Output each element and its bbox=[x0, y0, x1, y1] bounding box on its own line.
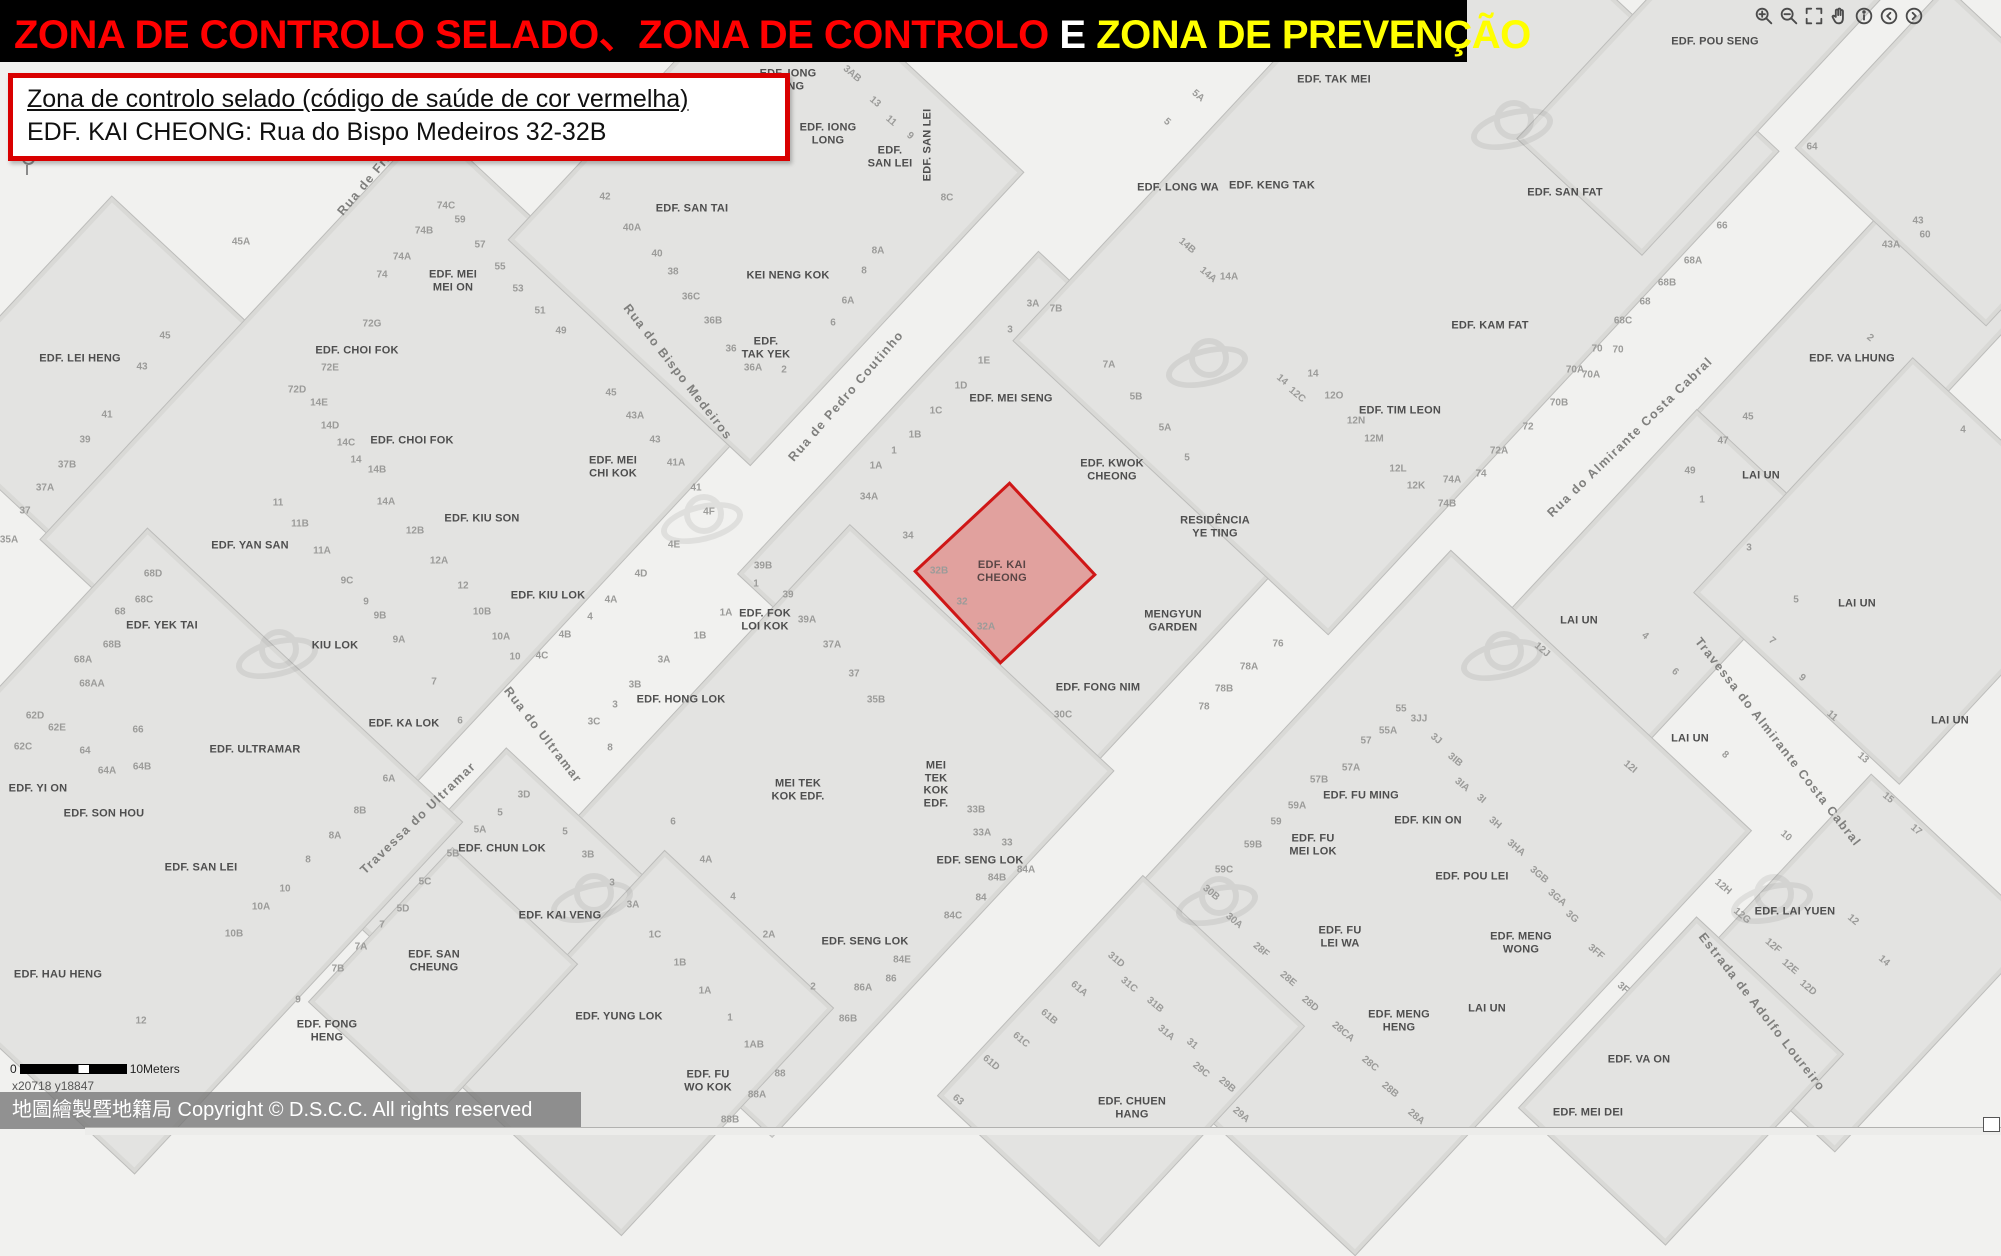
lot-number: 72D bbox=[288, 385, 306, 396]
lot-number: 11B bbox=[291, 519, 309, 530]
lot-number: 4A bbox=[700, 855, 713, 866]
info-box: Zona de controlo selado (código de saúde… bbox=[8, 73, 790, 161]
lot-number: 4 bbox=[730, 892, 736, 903]
lot-number: 41 bbox=[101, 410, 112, 421]
lot-number: 59 bbox=[454, 215, 465, 226]
lot-number: 6A bbox=[383, 774, 396, 785]
sealed-zone-label: EDF. KAI CHEONG bbox=[977, 559, 1027, 585]
lot-number: 12N bbox=[1347, 416, 1365, 427]
lot-number: 57B bbox=[1310, 775, 1328, 786]
zoom-in-icon[interactable] bbox=[1753, 5, 1775, 27]
info-line-sealed-zone: Zona de controlo selado (código de saúde… bbox=[27, 83, 771, 116]
lot-number: 14B bbox=[368, 465, 386, 476]
lot-number: 5B bbox=[1130, 392, 1143, 403]
lot-number: 68B bbox=[1658, 278, 1676, 289]
lot-number: 70 bbox=[1591, 344, 1602, 355]
lot-number: 35A bbox=[0, 535, 18, 546]
lot-number: 3A bbox=[658, 655, 671, 666]
map-toolbar bbox=[1753, 5, 1925, 27]
lot-number: 66 bbox=[1716, 221, 1727, 232]
lot-number: 3 bbox=[609, 878, 615, 889]
lot-number: 6 bbox=[457, 716, 463, 727]
lot-number: 49 bbox=[1684, 466, 1695, 477]
lot-number: 3C bbox=[588, 717, 601, 728]
building-label: EDF. MEI SENG bbox=[969, 393, 1052, 406]
lot-number: 8A bbox=[329, 831, 342, 842]
building-label: EDF. KAI VENG bbox=[519, 910, 602, 923]
scale-zero: 0 bbox=[10, 1062, 17, 1076]
lot-number: 12O bbox=[1325, 391, 1344, 402]
lot-number: 14A bbox=[1220, 272, 1238, 283]
lot-number: 84A bbox=[1017, 865, 1035, 876]
lot-number: 7B bbox=[1050, 304, 1063, 315]
lot-number: 10B bbox=[225, 929, 243, 940]
lot-number: 3 bbox=[1746, 543, 1752, 554]
lot-number: 57 bbox=[474, 240, 485, 251]
lot-number: 43 bbox=[1912, 216, 1923, 227]
identify-info-icon[interactable] bbox=[1853, 5, 1875, 27]
lot-number: 59 bbox=[1270, 817, 1281, 828]
lot-number: 68D bbox=[144, 569, 162, 580]
lot-number: 11A bbox=[313, 546, 331, 557]
lot-number: 10 bbox=[279, 884, 290, 895]
lot-number: 14 bbox=[1307, 369, 1318, 380]
building-label: EDF. HONG LOK bbox=[637, 694, 726, 707]
lot-number: 84 bbox=[975, 893, 986, 904]
building-label: LAI UN bbox=[1931, 715, 1969, 728]
building-label: LAI UN bbox=[1742, 470, 1780, 483]
lot-number: 8C bbox=[941, 193, 954, 204]
lot-number: 40 bbox=[651, 249, 662, 260]
building-label: EDF. FONG NIM bbox=[1056, 682, 1141, 695]
lot-number: 10 bbox=[1778, 828, 1794, 844]
lot-number: 68C bbox=[1614, 316, 1632, 327]
lot-number: 6 bbox=[830, 318, 836, 329]
lot-number: 59C bbox=[1215, 865, 1233, 876]
lot-number: 6A bbox=[842, 296, 855, 307]
building-label: EDF. YI ON bbox=[9, 783, 68, 796]
lot-number: 45 bbox=[159, 331, 170, 342]
lot-number: 1 bbox=[753, 579, 759, 590]
banner-segment: E bbox=[1049, 13, 1096, 57]
lot-number: 86 bbox=[885, 974, 896, 985]
building-label: EDF. MENG HENG bbox=[1368, 1008, 1430, 1033]
scale-bar-graphic bbox=[20, 1064, 127, 1074]
lot-number: 55 bbox=[1395, 704, 1406, 715]
lot-number: 3 bbox=[1007, 325, 1013, 336]
info-line-address: EDF. KAI CHEONG: Rua do Bispo Medeiros 3… bbox=[27, 116, 771, 149]
building-label: LAI UN bbox=[1468, 1003, 1506, 1016]
lot-number: 60 bbox=[1919, 230, 1930, 241]
lot-number: 8 bbox=[607, 743, 613, 754]
corner-window-icon[interactable] bbox=[1983, 1117, 2000, 1132]
lot-number: 64 bbox=[79, 746, 90, 757]
lot-number: 8 bbox=[305, 855, 311, 866]
lot-number: 7 bbox=[379, 920, 385, 931]
lot-number: 68B bbox=[103, 640, 121, 651]
lot-number: 14D bbox=[321, 421, 339, 432]
lot-number: 39A bbox=[798, 615, 816, 626]
lot-number: 34A bbox=[860, 492, 878, 503]
lot-number: 12A bbox=[430, 556, 448, 567]
lot-number: 1AB bbox=[744, 1040, 764, 1051]
lot-number: 36C bbox=[682, 292, 700, 303]
lot-number: 14C bbox=[337, 438, 355, 449]
lot-number: 10A bbox=[492, 632, 510, 643]
lot-number: 88A bbox=[748, 1090, 766, 1101]
building-label: EDF. FU WO KOK bbox=[684, 1068, 732, 1093]
lot-number: 39 bbox=[782, 590, 793, 601]
lot-number: 5A bbox=[474, 825, 487, 836]
building-label: EDF. KWOK CHEONG bbox=[1080, 457, 1144, 482]
building-label: EDF. KENG TAK bbox=[1229, 180, 1315, 193]
lot-number: 4C bbox=[536, 651, 549, 662]
lot-number: 4D bbox=[635, 569, 648, 580]
lot-number: 43A bbox=[1882, 240, 1900, 251]
lot-number: 1 bbox=[727, 1013, 733, 1024]
lot-number: 7 bbox=[431, 677, 437, 688]
lot-number: 1 bbox=[1699, 495, 1705, 506]
lot-number: 33B bbox=[967, 805, 985, 816]
building-label: EDF. SAN TAI bbox=[656, 203, 728, 216]
banner-segment: ZONA DE PREVENÇÃO bbox=[1096, 13, 1531, 57]
building-label: EDF. SENG LOK bbox=[937, 855, 1024, 868]
lot-number: 43 bbox=[136, 362, 147, 373]
building-label: EDF. CHOI FOK bbox=[315, 345, 398, 358]
lot-number: 1C bbox=[930, 406, 943, 417]
lot-number: 37 bbox=[848, 669, 859, 680]
lot-number: 37B bbox=[58, 460, 76, 471]
building-label: KEI NENG KOK bbox=[746, 270, 829, 283]
lot-number: 4 bbox=[1960, 425, 1966, 436]
lot-number: 33A bbox=[973, 828, 991, 839]
lot-number: 42 bbox=[599, 192, 610, 203]
lot-number: 6 bbox=[670, 817, 676, 828]
lot-number: 34 bbox=[902, 531, 913, 542]
scale-distance: 10Meters bbox=[130, 1062, 180, 1076]
lot-number: 4F bbox=[703, 507, 715, 518]
lot-number: 1C bbox=[649, 930, 662, 941]
lot-number: 14E bbox=[310, 398, 328, 409]
lot-number: 64A bbox=[98, 766, 116, 777]
building-label: EDF. CHUEN HANG bbox=[1098, 1095, 1166, 1120]
lot-number: 38 bbox=[667, 267, 678, 278]
lot-number: 14A bbox=[377, 497, 395, 508]
building-label: EDF. KIU SON bbox=[444, 513, 519, 526]
lot-number: 8B bbox=[354, 806, 367, 817]
banner: ZONA DE CONTROLO SELADO、ZONA DE CONTROLO… bbox=[0, 0, 1467, 62]
lot-number: 49 bbox=[555, 326, 566, 337]
lot-number: 45A bbox=[232, 237, 250, 248]
lot-number: 74 bbox=[1475, 469, 1486, 480]
lot-number: 12K bbox=[1407, 481, 1425, 492]
lot-number: 68 bbox=[114, 607, 125, 618]
lot-number: 86A bbox=[854, 983, 872, 994]
lot-number: 36A bbox=[744, 363, 762, 374]
lot-number: 70A bbox=[1566, 365, 1584, 376]
lot-number: 9A bbox=[393, 635, 406, 646]
lot-number: 39 bbox=[79, 435, 90, 446]
lot-number: 88 bbox=[774, 1069, 785, 1080]
copyright-bar: 地圖繪製暨地籍局 Copyright © D.S.C.C. All rights… bbox=[0, 1092, 581, 1129]
building-label: EDF. TIM LEON bbox=[1359, 405, 1441, 418]
building-label: EDF. SAN CHEUNG bbox=[408, 948, 460, 973]
lot-number: 2 bbox=[810, 982, 816, 993]
lot-number: 74 bbox=[376, 270, 387, 281]
banner-title: ZONA DE CONTROLO SELADO、ZONA DE CONTROLO… bbox=[14, 2, 1531, 60]
lot-number: 12 bbox=[457, 581, 468, 592]
full-extent-icon[interactable] bbox=[1803, 5, 1825, 27]
banner-segment: ZONA DE CONTROLO SELADO、ZONA DE CONTROLO bbox=[14, 13, 1049, 57]
building-label: EDF. SON HOU bbox=[64, 808, 145, 821]
building-label: EDF. SAN LEI bbox=[165, 862, 238, 875]
building-label: KIU LOK bbox=[312, 640, 359, 653]
lot-number: 64 bbox=[1806, 142, 1817, 153]
lot-number: 9 bbox=[295, 995, 301, 1006]
building-label: EDF. FU MING bbox=[1323, 790, 1399, 803]
lot-number: 74C bbox=[437, 201, 455, 212]
building-label: EDF. ULTRAMAR bbox=[210, 744, 301, 757]
building-label: EDF. YUNG LOK bbox=[575, 1011, 662, 1024]
lot-number: 74B bbox=[1438, 499, 1456, 510]
building-label: MENGYUN GARDEN bbox=[1144, 608, 1202, 633]
lot-number: 59B bbox=[1244, 840, 1262, 851]
map-application: { "banner": { "segments": [ {"text": "ZO… bbox=[0, 0, 2001, 1134]
building-label: EDF. FU LEI WA bbox=[1319, 924, 1362, 949]
lot-number: 5 bbox=[562, 827, 568, 838]
building-label: EDF. LEI HENG bbox=[39, 353, 120, 366]
lot-number: 5 bbox=[1184, 453, 1190, 464]
lot-number: 74A bbox=[393, 252, 411, 263]
scale-bar: 0 10Meters bbox=[10, 1062, 180, 1076]
lot-number: 32B bbox=[930, 566, 948, 577]
lot-number: 1A bbox=[699, 986, 712, 997]
lot-number: 5C bbox=[419, 877, 432, 888]
building-label: EDF. SAN LEI bbox=[868, 144, 913, 169]
lot-number: 55A bbox=[1379, 726, 1397, 737]
building-label: EDF. KAM FAT bbox=[1451, 320, 1528, 333]
lot-number: 68A bbox=[74, 655, 92, 666]
lot-number: 84C bbox=[944, 911, 962, 922]
lot-number: 8 bbox=[1719, 749, 1730, 761]
lot-number: 70 bbox=[1612, 345, 1623, 356]
lot-number: 10 bbox=[509, 652, 520, 663]
building-label: EDF. SENG LOK bbox=[822, 936, 909, 949]
lot-number: 2A bbox=[763, 930, 776, 941]
building-label: EDF. VA LHUNG bbox=[1809, 353, 1895, 366]
lot-number: 32A bbox=[977, 622, 995, 633]
building-label: EDF. VA ON bbox=[1608, 1054, 1671, 1067]
lot-number: 68C bbox=[135, 595, 153, 606]
lot-number: 74A bbox=[1443, 475, 1461, 486]
lot-number: 43A bbox=[626, 411, 644, 422]
lot-number: 1E bbox=[978, 356, 990, 367]
building-label: EDF. SAN FAT bbox=[1527, 187, 1603, 200]
lot-number: 62C bbox=[14, 742, 32, 753]
lot-number: 78A bbox=[1240, 662, 1258, 673]
building-label: EDF. YAN SAN bbox=[211, 540, 289, 553]
lot-number: 68 bbox=[1639, 297, 1650, 308]
lot-number: 9 bbox=[363, 597, 369, 608]
building-label: EDF. LONG WA bbox=[1137, 182, 1219, 195]
next-extent-icon[interactable] bbox=[1903, 5, 1925, 27]
lot-number: 35B bbox=[867, 695, 885, 706]
lot-number: 3D bbox=[518, 790, 531, 801]
lot-number: 78 bbox=[1198, 702, 1209, 713]
lot-number: 12L bbox=[1389, 464, 1406, 475]
building-label: EDF. KIN ON bbox=[1394, 815, 1462, 828]
lot-number: 64B bbox=[133, 762, 151, 773]
building-label: EDF. YEK TAI bbox=[126, 620, 198, 633]
lot-number: 57 bbox=[1360, 736, 1371, 747]
lot-number: 7A bbox=[355, 942, 368, 953]
lot-number: 43 bbox=[649, 435, 660, 446]
building-label: EDF. CHOI FOK bbox=[370, 435, 453, 448]
lot-number: 55 bbox=[494, 262, 505, 273]
lot-number: 30C bbox=[1054, 710, 1072, 721]
building-label: EDF. HAU HENG bbox=[14, 969, 102, 982]
lot-number: 1D bbox=[955, 381, 968, 392]
lot-number: 59A bbox=[1288, 801, 1306, 812]
lot-number: 4B bbox=[559, 630, 572, 641]
lot-number: 70B bbox=[1550, 398, 1568, 409]
lot-number: 5 bbox=[497, 808, 503, 819]
lot-number: 14 bbox=[350, 455, 361, 466]
lot-number: 36 bbox=[725, 344, 736, 355]
lot-number: 5B bbox=[447, 849, 460, 860]
lot-number: 2 bbox=[781, 365, 787, 376]
lot-number: 4E bbox=[668, 540, 680, 551]
building-label: EDF. CHUN LOK bbox=[458, 843, 546, 856]
lot-number: 68A bbox=[1684, 256, 1702, 267]
lot-number: 1B bbox=[694, 631, 707, 642]
lot-number: 1A bbox=[720, 608, 733, 619]
building-label: MEI TEK KOK EDF. bbox=[772, 777, 825, 802]
building-label: EDF. MEI CHI KOK bbox=[589, 454, 637, 479]
lot-number: 1B bbox=[909, 430, 922, 441]
lot-number: 3A bbox=[627, 900, 640, 911]
building-label: LAI UN bbox=[1838, 598, 1876, 611]
building-label: EDF. TAK YEK bbox=[742, 335, 791, 360]
lot-number: 4A bbox=[605, 595, 618, 606]
building-label: MEI TEK KOK EDF. bbox=[923, 760, 948, 811]
lot-number: 84E bbox=[893, 955, 911, 966]
lot-number: 1 bbox=[891, 446, 897, 457]
lot-number: 70A bbox=[1582, 370, 1600, 381]
lot-number: 86B bbox=[839, 1014, 857, 1025]
lot-number: 72E bbox=[321, 363, 339, 374]
building-label: EDF. MENG WONG bbox=[1490, 930, 1552, 955]
lot-number: 11 bbox=[273, 498, 284, 509]
previous-extent-icon[interactable] bbox=[1878, 5, 1900, 27]
lot-number: 12M bbox=[1364, 434, 1383, 445]
building-label: EDF. LAI YUEN bbox=[1755, 906, 1836, 919]
lot-number: 72G bbox=[363, 319, 382, 330]
lot-number: 5 bbox=[1793, 595, 1799, 606]
lot-number: 62D bbox=[26, 711, 44, 722]
lot-number: 9C bbox=[341, 576, 354, 587]
lot-number: 3A bbox=[1027, 299, 1040, 310]
building-label: EDF. KA LOK bbox=[369, 718, 440, 731]
lot-number: 3JJ bbox=[1411, 714, 1428, 725]
lot-number: 12H bbox=[1712, 877, 1733, 897]
lot-number: 37A bbox=[823, 640, 841, 651]
building-label: LAI UN bbox=[1560, 615, 1598, 628]
building-label: EDF. POU LEI bbox=[1435, 871, 1508, 884]
lot-number: 39B bbox=[754, 561, 772, 572]
lot-number: 9B bbox=[374, 611, 387, 622]
lot-number: 41 bbox=[690, 483, 701, 494]
lot-number: 3B bbox=[582, 850, 595, 861]
lot-number: 78B bbox=[1215, 684, 1233, 695]
lot-number: 5D bbox=[397, 904, 410, 915]
zoom-out-icon[interactable] bbox=[1778, 5, 1800, 27]
lot-number: 45 bbox=[1742, 412, 1753, 423]
lot-number: 5A bbox=[1190, 88, 1207, 105]
lot-number: 7A bbox=[1103, 360, 1116, 371]
lot-number: 53 bbox=[512, 284, 523, 295]
building-label: RESIDÊNCIA YE TING bbox=[1180, 514, 1250, 539]
building-label: EDF. TAK MEI bbox=[1297, 74, 1371, 87]
lot-number: 8 bbox=[861, 266, 867, 277]
lot-number: 3B bbox=[629, 680, 642, 691]
building-label: EDF. FOK LOI KOK bbox=[739, 607, 791, 632]
building-label: EDF. IONG LONG bbox=[800, 121, 857, 146]
building-label: EDF. MEI MEI ON bbox=[429, 268, 477, 293]
lot-number: 84B bbox=[988, 873, 1006, 884]
map-canvas[interactable]: EDF. KAI CHEONG EDF. POU SENGEDF. TAK ME… bbox=[0, 0, 2001, 1134]
lot-number: 45 bbox=[605, 388, 616, 399]
building-label: EDF. MEI DEI bbox=[1553, 1107, 1623, 1120]
building-label: EDF. KIU LOK bbox=[511, 590, 586, 603]
lot-number: 10A bbox=[252, 902, 270, 913]
pan-hand-icon[interactable] bbox=[1828, 5, 1850, 27]
cursor-coordinates: x20718 y18847 bbox=[12, 1079, 94, 1093]
lot-number: 37A bbox=[36, 483, 54, 494]
lot-number: 8A bbox=[872, 246, 885, 257]
building-label: EDF. FONG HENG bbox=[297, 1018, 357, 1043]
building-label: LAI UN bbox=[1671, 733, 1709, 746]
lot-number: 41A bbox=[667, 458, 685, 469]
lot-number: 36B bbox=[704, 316, 722, 327]
lot-number: 88B bbox=[721, 1115, 739, 1126]
lot-number: 68AA bbox=[79, 679, 105, 690]
lot-number: 4 bbox=[587, 612, 593, 623]
lot-number: 37 bbox=[19, 506, 30, 517]
lot-number: 57A bbox=[1342, 763, 1360, 774]
lot-number: 7B bbox=[332, 964, 345, 975]
lot-number: 3 bbox=[612, 700, 618, 711]
lot-number: 72 bbox=[1522, 422, 1533, 433]
lot-number: 51 bbox=[534, 306, 545, 317]
lot-number: 62E bbox=[48, 723, 66, 734]
lot-number: 1A bbox=[870, 461, 883, 472]
lot-number: 74B bbox=[415, 226, 433, 237]
lot-number: 76 bbox=[1272, 639, 1283, 650]
lot-number: 12 bbox=[135, 1016, 146, 1027]
building-label: EDF. FU MEI LOK bbox=[1289, 832, 1336, 857]
lot-number: 32 bbox=[956, 597, 967, 608]
lot-number: 1B bbox=[674, 958, 687, 969]
lot-number: 12B bbox=[406, 526, 424, 537]
lot-number: 66 bbox=[132, 725, 143, 736]
building-label: EDF. POU SENG bbox=[1671, 36, 1759, 49]
lot-number: 40A bbox=[623, 223, 641, 234]
lot-number: 72A bbox=[1490, 446, 1508, 457]
building-label: EDF. SAN LEI bbox=[922, 109, 935, 182]
lot-number: 5 bbox=[1161, 116, 1172, 128]
lot-number: 10B bbox=[473, 607, 491, 618]
